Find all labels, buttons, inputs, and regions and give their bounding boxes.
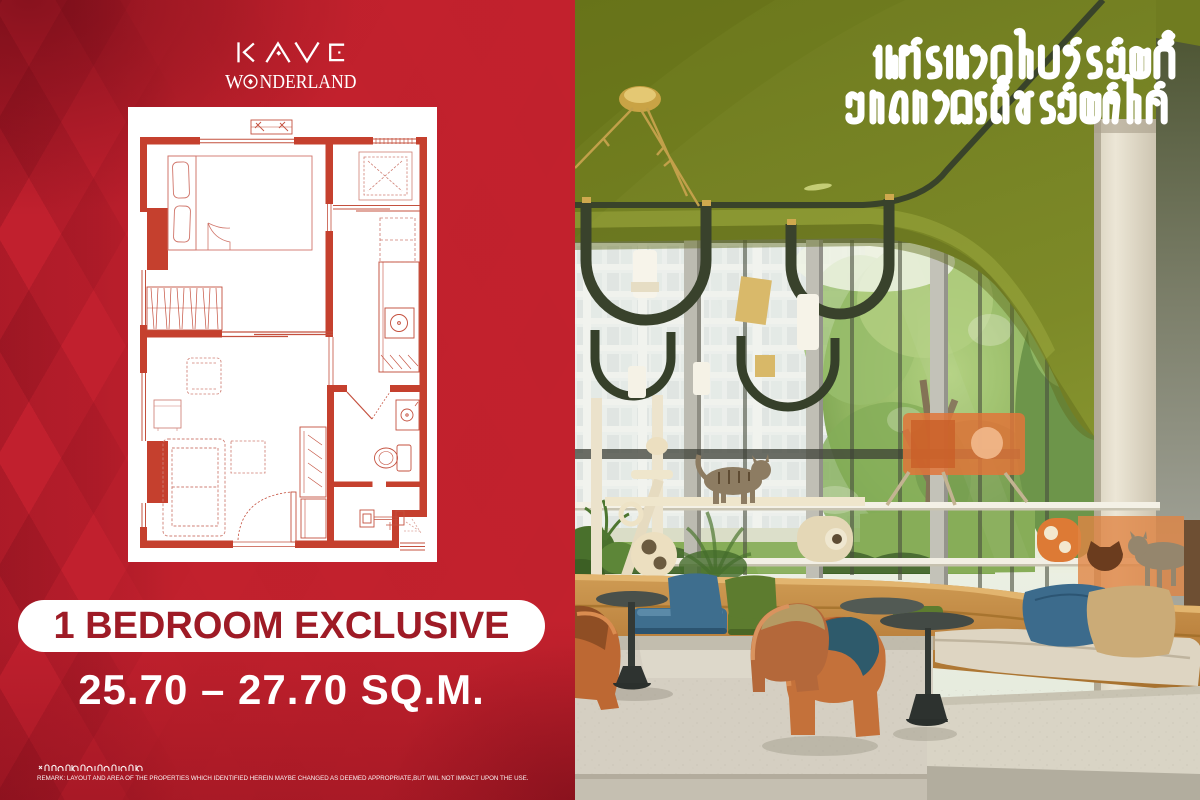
svg-text:NDERLAND: NDERLAND [260,72,357,93]
svg-text:W: W [225,72,244,93]
